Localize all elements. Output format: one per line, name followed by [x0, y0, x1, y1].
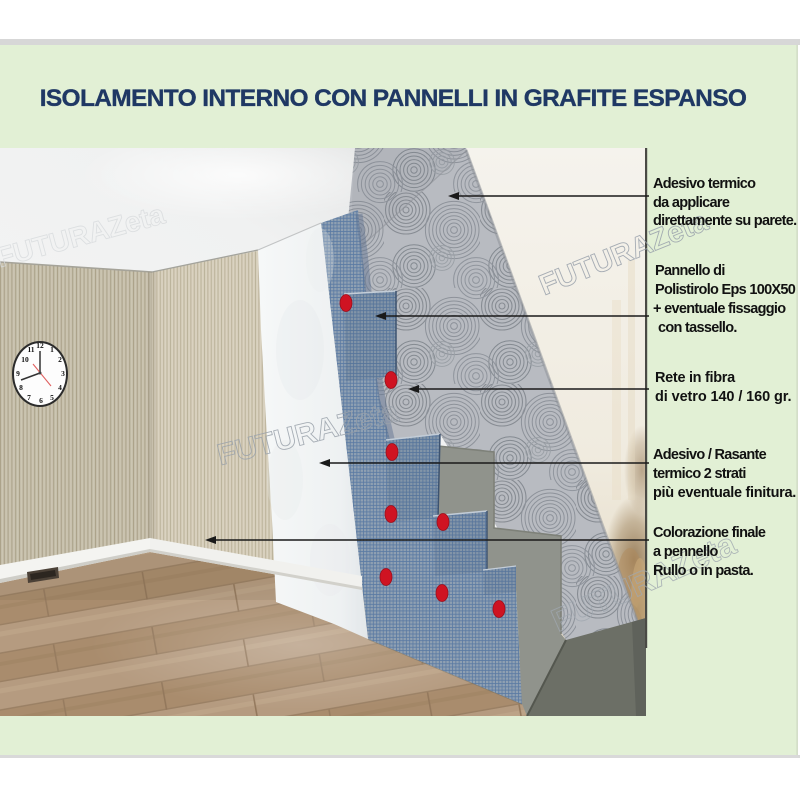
svg-text:11: 11 [27, 345, 34, 354]
svg-text:+ eventuale fissaggio: + eventuale fissaggio [653, 301, 786, 317]
svg-text:ISOLAMENTO INTERNO CON PANNELL: ISOLAMENTO INTERNO CON PANNELLI IN GRAFI… [40, 85, 747, 112]
svg-text:Polistirolo Eps 100X50: Polistirolo Eps 100X50 [655, 282, 796, 298]
svg-text:10: 10 [21, 355, 29, 364]
svg-text:Rete in fibra: Rete in fibra [655, 370, 736, 386]
svg-text:termico 2 strati: termico 2 strati [653, 466, 746, 482]
svg-text:4: 4 [58, 383, 62, 392]
svg-text:da applicare: da applicare [653, 195, 730, 211]
svg-text:di vetro 140 / 160 gr.: di vetro 140 / 160 gr. [655, 389, 791, 405]
svg-text:direttamente su parete.: direttamente su parete. [653, 213, 797, 229]
svg-text:1: 1 [50, 345, 54, 354]
svg-text:2: 2 [58, 355, 62, 364]
svg-text:3: 3 [61, 369, 65, 378]
svg-text:7: 7 [27, 393, 31, 402]
svg-text:Adesivo / Rasante: Adesivo / Rasante [653, 447, 767, 463]
svg-text:più eventuale finitura.: più eventuale finitura. [653, 485, 796, 501]
svg-text:5: 5 [50, 393, 54, 402]
svg-text:12: 12 [36, 341, 44, 350]
svg-text:Colorazione finale: Colorazione finale [653, 525, 766, 541]
svg-text:con tassello.: con tassello. [658, 320, 737, 336]
svg-text:Rullo o in pasta.: Rullo o in pasta. [653, 563, 754, 579]
svg-text:Pannello di: Pannello di [655, 263, 725, 279]
svg-text:Adesivo termico: Adesivo termico [653, 176, 756, 192]
svg-text:6: 6 [39, 396, 43, 405]
svg-text:a pennello: a pennello [653, 544, 719, 560]
svg-text:8: 8 [19, 383, 23, 392]
svg-text:9: 9 [16, 369, 20, 378]
